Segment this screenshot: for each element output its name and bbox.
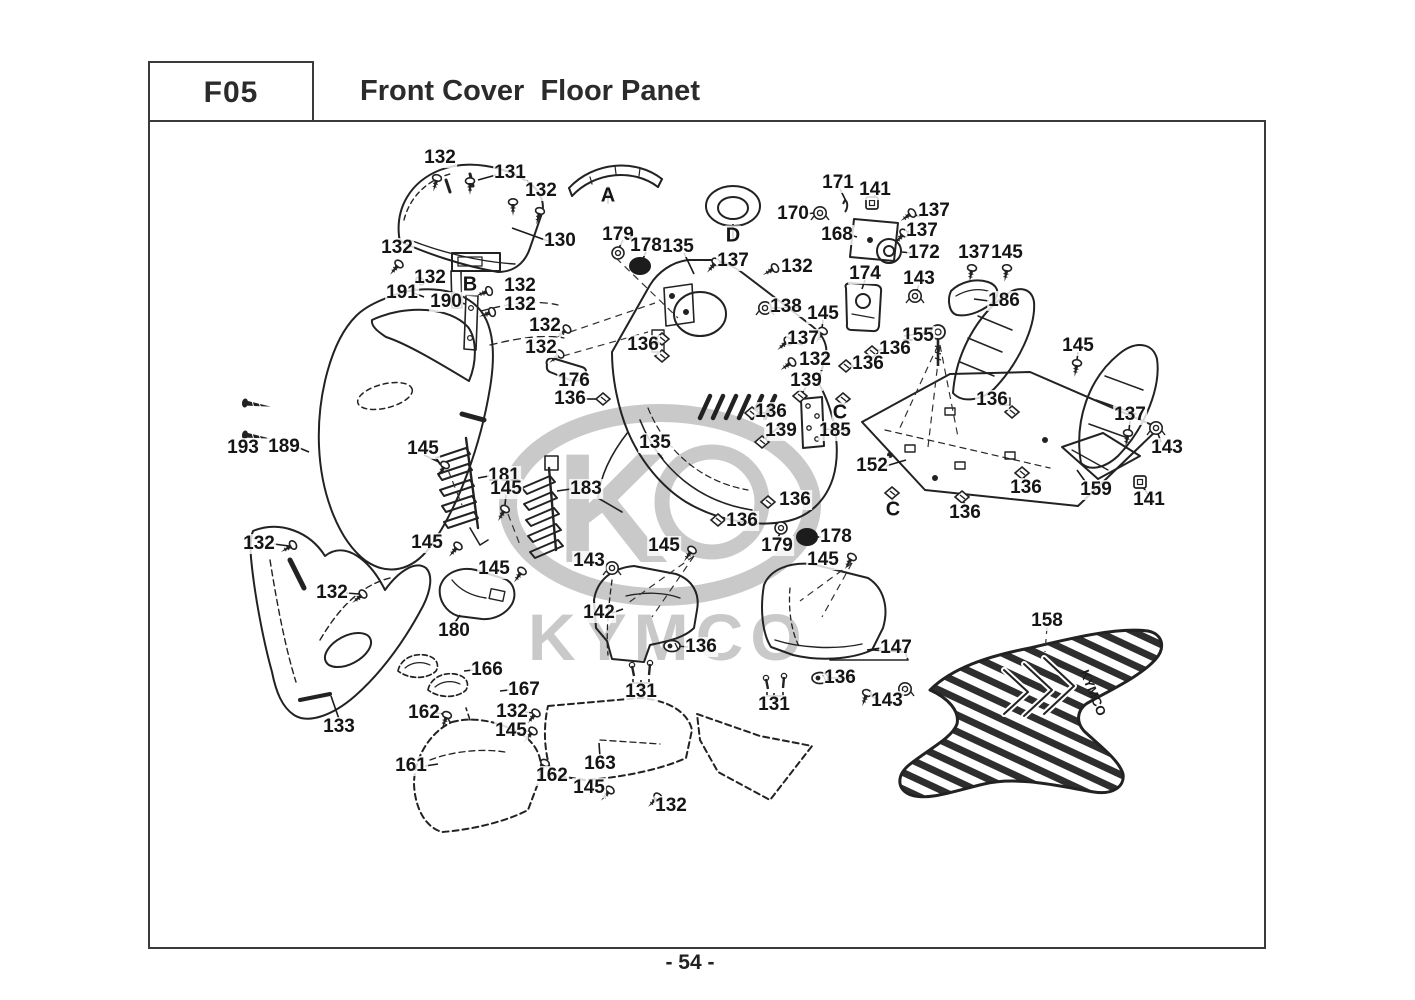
part-180-bracket xyxy=(440,569,515,619)
part-174-bracket xyxy=(846,283,882,331)
part-185-plate xyxy=(801,397,824,448)
screw-fastener-icon xyxy=(858,688,872,707)
part-159-insert-plate xyxy=(1062,433,1140,479)
clip-fastener-icon xyxy=(865,346,879,358)
clip-fastener-icon xyxy=(1015,467,1029,479)
nut-fastener-icon xyxy=(811,207,829,220)
part-189-front-cover xyxy=(319,289,564,569)
part-a-trim-arc xyxy=(569,166,662,196)
screw-fastener-icon xyxy=(349,588,368,606)
exploded-parts-diagram: K KYMCO xyxy=(0,0,1415,1000)
screw-fastener-icon xyxy=(1070,359,1082,378)
clip-fastener-icon xyxy=(596,393,610,405)
screw-fastener-icon xyxy=(546,348,565,366)
oclip-fastener-icon xyxy=(664,641,680,652)
screw-fastener-icon xyxy=(446,541,464,560)
pair-fastener-icon xyxy=(763,673,786,701)
clip-fastener-icon xyxy=(793,390,807,402)
part-158-floor-mat: KYMCO xyxy=(900,630,1162,797)
part-176-bracket xyxy=(547,358,586,381)
lscrew-fastener-icon xyxy=(241,398,271,411)
oclip-fastener-icon xyxy=(812,673,828,684)
nut-fastener-icon xyxy=(896,683,914,696)
pin-fastener-icon xyxy=(843,200,847,212)
pad-fastener-icon xyxy=(629,257,651,275)
clip-fastener-icon xyxy=(839,360,853,372)
part-166-167-clips xyxy=(398,655,468,697)
screw-fastener-icon xyxy=(510,566,527,585)
nut-fastener-icon xyxy=(906,290,924,303)
page-number: - 54 - xyxy=(130,951,1250,975)
screw-fastener-icon xyxy=(387,259,405,278)
screw-fastener-icon xyxy=(761,263,780,279)
clip-fastener-icon xyxy=(711,514,725,526)
screw-fastener-icon xyxy=(509,199,518,216)
screw-fastener-icon xyxy=(534,758,550,777)
clip-fastener-icon xyxy=(1005,406,1019,418)
screw-fastener-icon xyxy=(645,792,664,811)
nut-fastener-icon xyxy=(756,302,774,315)
pad-fastener-icon xyxy=(796,528,818,546)
sq-fastener-icon xyxy=(866,197,878,209)
part-152-floor-rail-left xyxy=(953,289,1034,399)
screw-fastener-icon xyxy=(524,708,542,727)
screw-fastener-icon xyxy=(1000,264,1012,283)
part-168-bracket-cluster xyxy=(850,219,901,263)
part-186-bracket xyxy=(949,280,997,315)
lscrew-fastener-icon xyxy=(241,430,271,443)
part-181-louver xyxy=(436,438,488,545)
catalog-page: F05 Front Cover Floor Panet xyxy=(0,0,1415,1000)
ring-fastener-icon xyxy=(775,522,787,534)
part-133-front-lower-cover xyxy=(251,527,431,719)
screw-fastener-icon xyxy=(898,207,917,224)
screw-fastener-icon xyxy=(429,174,442,193)
screw-fastener-icon xyxy=(408,276,426,295)
part-d-grommet-ring xyxy=(706,186,760,226)
part-163-inner-panel xyxy=(545,698,812,800)
sq-fastener-icon xyxy=(1134,476,1146,488)
clip-fastener-icon xyxy=(836,393,850,405)
screw-fastener-icon xyxy=(553,323,572,341)
screw-fastener-icon xyxy=(279,540,298,556)
screw-fastener-icon xyxy=(892,228,910,247)
ring-fastener-icon xyxy=(612,247,624,259)
clip-fastener-icon xyxy=(655,333,669,345)
part-161-lower-cover xyxy=(414,708,541,832)
screw-fastener-icon xyxy=(598,785,616,804)
part-152-floor-rail-right xyxy=(1079,345,1157,468)
screw-fastener-icon xyxy=(778,356,797,373)
clip-fastener-icon xyxy=(885,487,899,499)
screw-fastener-icon xyxy=(774,335,793,353)
